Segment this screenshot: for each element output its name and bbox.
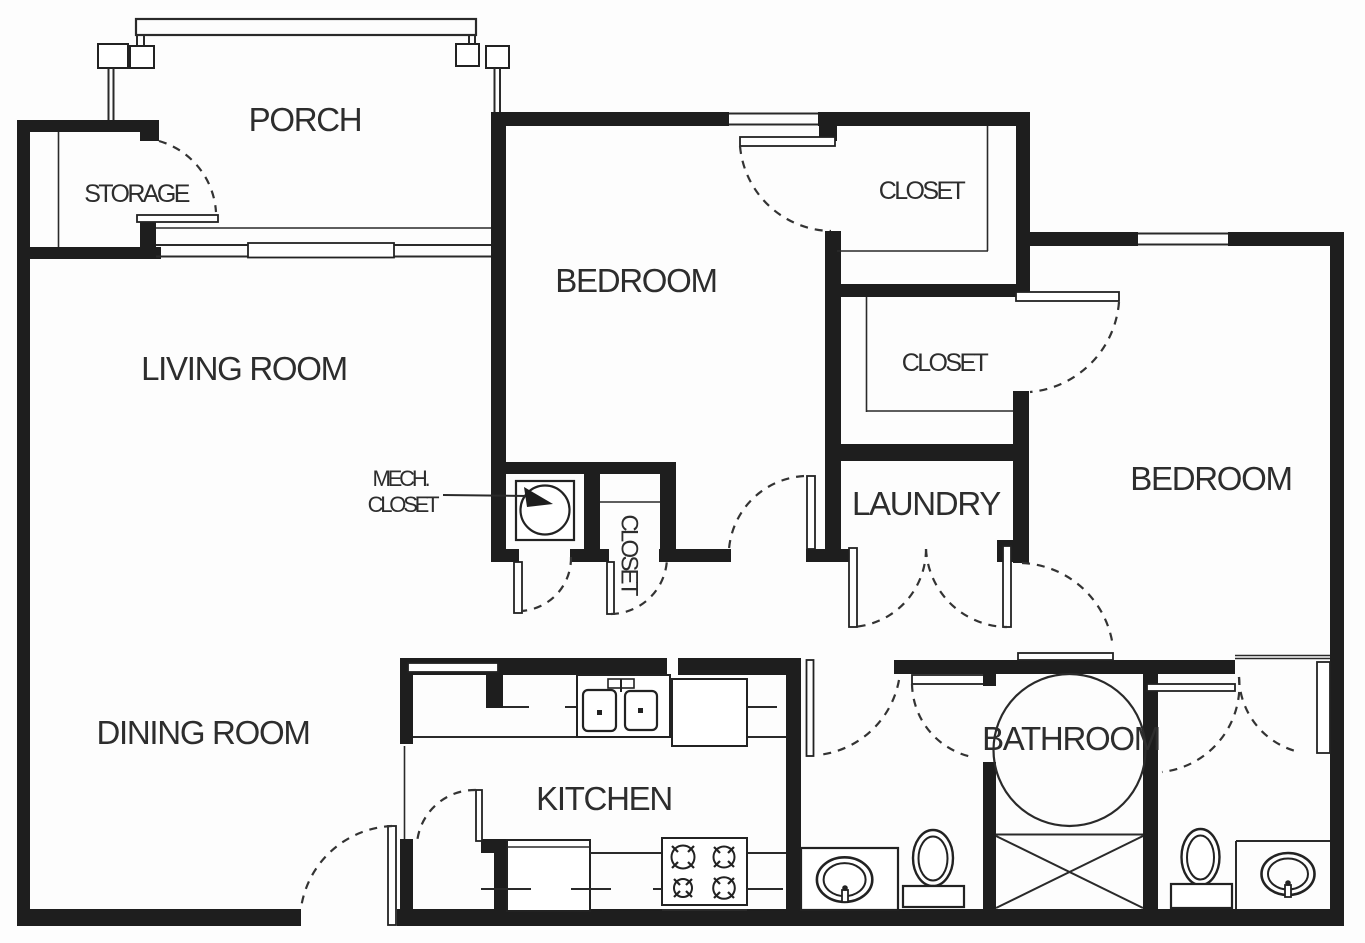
svg-text:BEDROOM: BEDROOM: [555, 262, 716, 299]
svg-text:KITCHEN: KITCHEN: [536, 780, 672, 817]
svg-text:PORCH: PORCH: [249, 101, 362, 138]
svg-text:LAUNDRY: LAUNDRY: [852, 485, 1001, 522]
svg-text:CLOSET: CLOSET: [902, 349, 989, 377]
svg-text:CLOSET: CLOSET: [616, 514, 643, 596]
svg-text:MECH.: MECH.: [373, 466, 430, 491]
svg-text:LIVING ROOM: LIVING ROOM: [141, 350, 347, 387]
svg-text:DINING ROOM: DINING ROOM: [96, 714, 309, 751]
svg-text:CLOSET: CLOSET: [879, 177, 966, 205]
svg-text:BEDROOM: BEDROOM: [1130, 460, 1291, 497]
svg-text:STORAGE: STORAGE: [84, 180, 190, 208]
svg-text:CLOSET: CLOSET: [368, 492, 440, 517]
svg-text:BATHROOM: BATHROOM: [982, 720, 1160, 757]
